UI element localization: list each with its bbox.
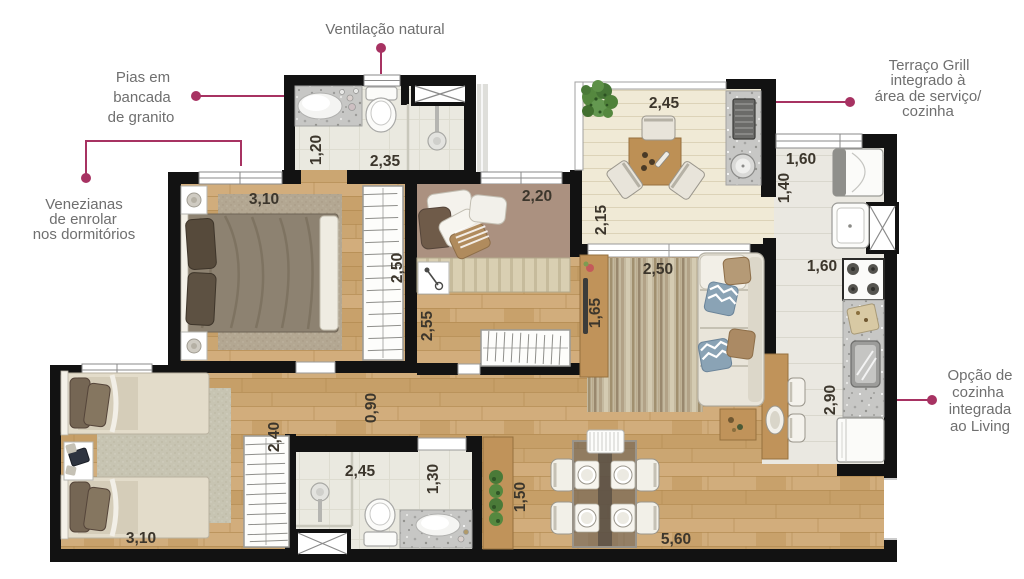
- svg-text:1,60: 1,60: [786, 151, 816, 168]
- svg-text:3,10: 3,10: [249, 191, 279, 208]
- svg-text:1,50: 1,50: [512, 482, 529, 512]
- svg-text:5,60: 5,60: [661, 531, 691, 548]
- svg-text:2,45: 2,45: [345, 463, 376, 480]
- svg-text:bancada: bancada: [113, 89, 171, 106]
- svg-text:de granito: de granito: [108, 109, 175, 126]
- svg-text:nos dormitórios: nos dormitórios: [33, 226, 136, 243]
- svg-text:0,90: 0,90: [363, 393, 380, 423]
- svg-text:1,30: 1,30: [425, 464, 442, 494]
- svg-text:1,60: 1,60: [807, 258, 837, 275]
- svg-text:2,90: 2,90: [822, 385, 839, 415]
- svg-text:1,65: 1,65: [587, 298, 604, 329]
- svg-text:2,50: 2,50: [643, 261, 673, 278]
- svg-text:3,10: 3,10: [126, 530, 156, 547]
- svg-text:Ventilação natural: Ventilação natural: [325, 21, 444, 38]
- svg-text:2,55: 2,55: [419, 311, 436, 342]
- svg-text:2,40: 2,40: [266, 422, 283, 452]
- svg-text:2,45: 2,45: [649, 95, 680, 112]
- svg-text:Pias em: Pias em: [116, 69, 170, 86]
- svg-text:2,35: 2,35: [370, 153, 401, 170]
- svg-text:2,50: 2,50: [389, 253, 406, 283]
- svg-text:1,40: 1,40: [776, 173, 793, 203]
- svg-text:cozinha: cozinha: [952, 384, 1004, 401]
- svg-text:integrada: integrada: [949, 401, 1012, 418]
- svg-text:2,20: 2,20: [522, 188, 552, 205]
- svg-text:Opção de: Opção de: [947, 367, 1012, 384]
- svg-text:1,20: 1,20: [308, 135, 325, 165]
- svg-text:integrado à: integrado à: [890, 72, 966, 89]
- svg-text:ao Living: ao Living: [950, 418, 1010, 435]
- svg-text:2,15: 2,15: [593, 205, 610, 236]
- svg-text:cozinha: cozinha: [902, 103, 954, 120]
